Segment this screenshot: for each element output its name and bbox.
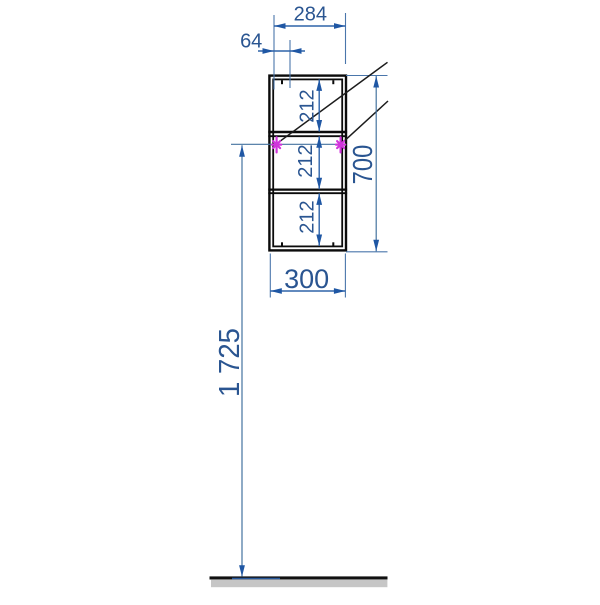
svg-text:700: 700: [346, 145, 378, 185]
svg-text:1 725: 1 725: [212, 328, 245, 397]
svg-text:300: 300: [284, 264, 329, 294]
svg-text:212: 212: [295, 144, 317, 177]
svg-text:64: 64: [240, 31, 262, 53]
svg-text:212: 212: [297, 200, 319, 233]
svg-text:212: 212: [297, 89, 319, 122]
svg-text:284: 284: [294, 4, 327, 26]
